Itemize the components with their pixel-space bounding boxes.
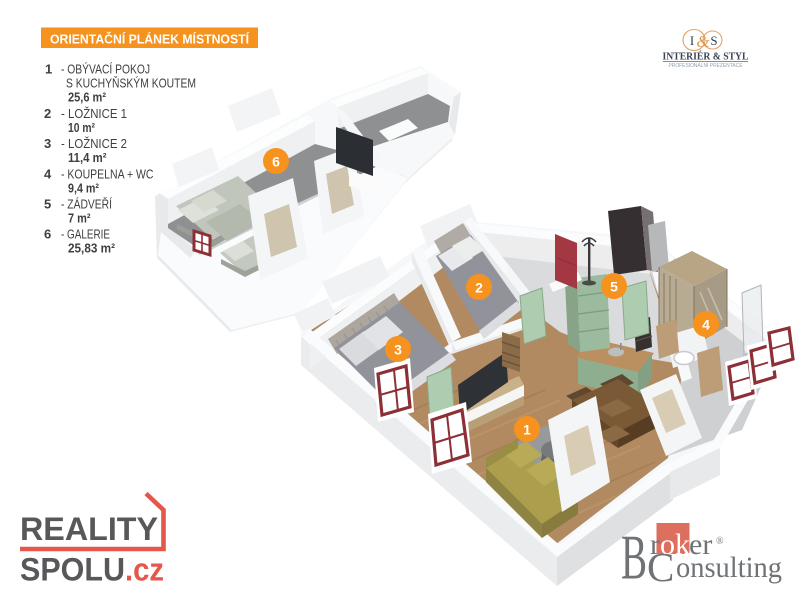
svg-text:®: ®	[716, 536, 724, 547]
svg-text:25,6 m²: 25,6 m²	[68, 90, 107, 105]
svg-text:- LOŽNICE 2: - LOŽNICE 2	[61, 136, 127, 151]
svg-text:11,4 m²: 11,4 m²	[68, 150, 107, 165]
svg-text:2: 2	[44, 106, 51, 121]
svg-text:9,4 m²: 9,4 m²	[68, 181, 100, 196]
svg-text:S KUCHYŇSKÝM KOUTEM: S KUCHYŇSKÝM KOUTEM	[66, 76, 196, 91]
svg-text:- OBÝVACÍ POKOJ: - OBÝVACÍ POKOJ	[61, 62, 150, 77]
svg-text:3: 3	[394, 342, 402, 358]
svg-text:REALITY: REALITY	[20, 511, 158, 547]
svg-text:25,83 m²: 25,83 m²	[68, 241, 116, 256]
svg-text:PROFESIONÁLNÍ PREZENTACE: PROFESIONÁLNÍ PREZENTACE	[669, 62, 744, 69]
svg-text:2: 2	[475, 280, 483, 296]
svg-text:4: 4	[702, 317, 710, 333]
svg-text:4: 4	[44, 167, 52, 182]
svg-text:3: 3	[44, 136, 51, 151]
svg-text:&: &	[696, 32, 710, 51]
svg-text:6: 6	[44, 227, 51, 242]
svg-text:SPOLU: SPOLU	[20, 552, 125, 588]
svg-text:10 m²: 10 m²	[68, 120, 96, 135]
svg-text:1: 1	[45, 62, 52, 77]
svg-text:- GALERIE: - GALERIE	[61, 227, 110, 242]
svg-text:INTERIÉR & STYL: INTERIÉR & STYL	[663, 51, 749, 63]
svg-text:6: 6	[272, 154, 280, 170]
svg-text:I: I	[690, 33, 694, 48]
svg-text:1: 1	[523, 422, 531, 438]
svg-text:onsulting: onsulting	[676, 551, 782, 584]
svg-text:B: B	[621, 523, 647, 593]
svg-text:- ZÁDVEŘÍ: - ZÁDVEŘÍ	[61, 197, 112, 212]
svg-text:5: 5	[44, 197, 51, 212]
svg-text:- LOŽNICE 1: - LOŽNICE 1	[61, 106, 127, 121]
svg-text:.cz: .cz	[125, 552, 164, 588]
svg-text:S: S	[710, 33, 717, 48]
svg-text:7 m²: 7 m²	[68, 211, 91, 226]
svg-text:C: C	[647, 544, 674, 590]
svg-text:5: 5	[610, 279, 618, 295]
svg-text:ORIENTAČNÍ PLÁNEK MÍSTNOSTÍ: ORIENTAČNÍ PLÁNEK MÍSTNOSTÍ	[50, 32, 249, 47]
svg-text:- KOUPELNA + WC: - KOUPELNA + WC	[61, 167, 154, 182]
